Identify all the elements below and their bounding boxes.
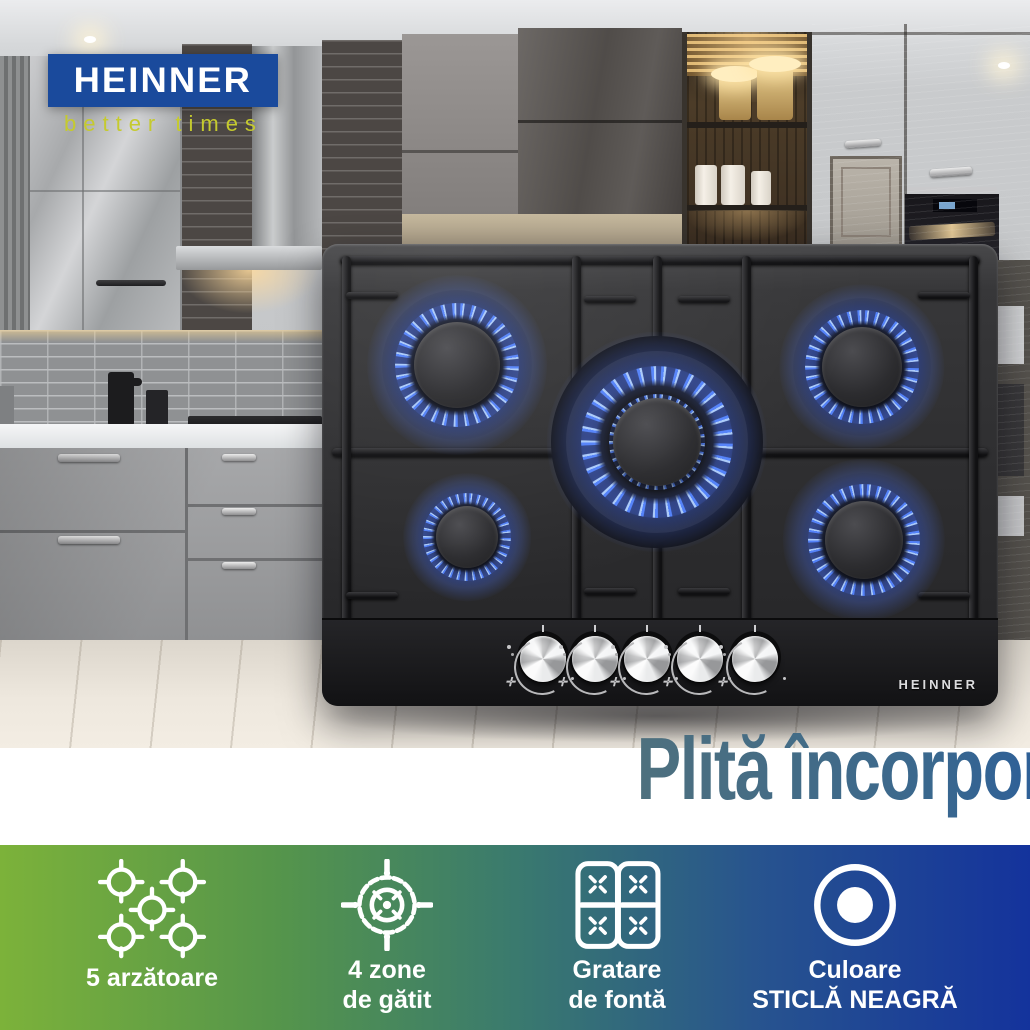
flame-symbol: ✛ bbox=[505, 675, 515, 689]
flame-symbol: ✛ bbox=[609, 675, 619, 689]
drawer-handle bbox=[222, 508, 256, 515]
knob-dial bbox=[520, 636, 566, 682]
headline-text: Plită încorporabilă pe gaz bbox=[637, 718, 1030, 820]
grate-finger bbox=[584, 296, 636, 303]
drawer-handle bbox=[58, 454, 120, 462]
knob-dial bbox=[732, 636, 778, 682]
gas-flame-inner bbox=[609, 394, 705, 490]
burner-cap bbox=[613, 398, 701, 486]
gas-flame bbox=[395, 303, 519, 427]
wall-louvers bbox=[0, 56, 30, 336]
control-knob-3: ✛ bbox=[619, 633, 675, 689]
cabinet-handle bbox=[930, 167, 972, 178]
product-brand-label: HEINNER bbox=[898, 677, 978, 692]
brand-logo: HEINNER bbox=[48, 54, 278, 107]
candle-lamp bbox=[757, 66, 793, 120]
brand-logo-text: HEINNER bbox=[74, 61, 252, 101]
five-burners-icon bbox=[88, 859, 216, 959]
control-knob-1: ✛ bbox=[515, 633, 571, 689]
flame-symbol: ✛ bbox=[717, 675, 727, 689]
ceiling-spotlight bbox=[84, 36, 96, 43]
feature-bar: 5 arzătoare 4 zone de gătit bbox=[0, 845, 1030, 1030]
feature-cooking-zones: 4 zone de gătit bbox=[272, 845, 502, 1030]
grate-bar bbox=[332, 448, 988, 457]
feature-black-glass: Culoare STICLĂ NEAGRĂ bbox=[740, 845, 970, 1030]
burner-cap bbox=[822, 327, 902, 407]
burner-bottom-right bbox=[797, 473, 931, 607]
burner-top-left bbox=[382, 290, 532, 440]
brand-tagline: better times bbox=[64, 111, 279, 137]
ad-canvas: HEINNER better times bbox=[0, 0, 1030, 1030]
gas-flame-outer bbox=[581, 366, 733, 518]
gas-flame bbox=[423, 493, 511, 581]
grate-finger bbox=[678, 588, 730, 595]
control-panel: ✛ ✛ ✛ ✛ bbox=[322, 618, 998, 706]
grate-bar bbox=[342, 256, 351, 645]
jar bbox=[695, 165, 717, 205]
cabinet-handle bbox=[96, 280, 166, 286]
flame-symbol: ✛ bbox=[662, 675, 672, 689]
grate-finger bbox=[346, 592, 398, 599]
gas-hob-product: ✛ ✛ ✛ ✛ bbox=[322, 244, 998, 706]
burner-cap bbox=[414, 322, 500, 408]
gas-flame bbox=[808, 484, 920, 596]
shelf bbox=[687, 122, 807, 128]
soap-dispenser bbox=[108, 372, 134, 426]
feature-label: Gratare de fontă bbox=[502, 955, 732, 1015]
grate-bar bbox=[572, 256, 581, 645]
control-knob-5: ✛ bbox=[727, 633, 783, 689]
grate-finger bbox=[918, 592, 970, 599]
grate-finger bbox=[346, 292, 398, 299]
control-knob-4: ✛ bbox=[672, 633, 728, 689]
burner-cap bbox=[436, 506, 498, 568]
knob-dial bbox=[677, 636, 723, 682]
burner-cap bbox=[825, 501, 903, 579]
feature-label: Culoare STICLĂ NEAGRĂ bbox=[740, 955, 970, 1015]
feature-label: 4 zone de gătit bbox=[272, 955, 502, 1015]
flame-glow bbox=[779, 284, 944, 449]
grate-bar bbox=[742, 256, 751, 645]
knob-dial bbox=[624, 636, 670, 682]
cast-iron-grates-icon bbox=[566, 859, 669, 951]
drawer-handle bbox=[58, 536, 120, 544]
flame-glow bbox=[783, 459, 945, 621]
cabinet-handle bbox=[845, 139, 881, 148]
oven-display bbox=[933, 199, 977, 212]
flame-glow bbox=[547, 332, 767, 552]
hood-light-glow bbox=[178, 270, 320, 314]
grate-bar bbox=[653, 256, 662, 645]
knob-dial bbox=[572, 636, 618, 682]
burner-center-wok bbox=[551, 336, 763, 548]
countertop bbox=[0, 424, 322, 450]
grate-finger bbox=[918, 292, 970, 299]
candle-lamp bbox=[719, 76, 751, 120]
base-cabinets bbox=[0, 448, 322, 648]
cup bbox=[146, 390, 168, 426]
built-in-appliance bbox=[830, 156, 902, 248]
drawer-handle bbox=[222, 562, 256, 569]
jar bbox=[751, 171, 771, 205]
wok-ring bbox=[551, 336, 763, 548]
lighted-shelf-niche bbox=[682, 32, 812, 254]
burner-bottom-left bbox=[413, 483, 521, 591]
drawer-handle bbox=[222, 454, 256, 461]
burner-top-right bbox=[793, 298, 931, 436]
gas-flame bbox=[805, 310, 919, 424]
flame-glow bbox=[403, 473, 531, 601]
black-glass-icon bbox=[809, 859, 901, 951]
grate-finger bbox=[584, 588, 636, 595]
feature-burners: 5 arzătoare bbox=[37, 845, 267, 1030]
flame-symbol: ✛ bbox=[557, 675, 567, 689]
jar bbox=[721, 165, 745, 205]
feature-label: 5 arzătoare bbox=[37, 963, 267, 993]
oven-handle bbox=[907, 187, 997, 192]
grate-bar bbox=[340, 256, 980, 265]
control-knob-2: ✛ bbox=[567, 633, 623, 689]
oven-interior-light bbox=[909, 222, 996, 240]
range-hood-canopy bbox=[176, 246, 322, 270]
under-cabinet-light bbox=[0, 330, 322, 342]
flame-glow bbox=[367, 275, 547, 455]
cooking-zones-icon bbox=[341, 859, 433, 951]
feature-grates: Gratare de fontă bbox=[502, 845, 732, 1030]
grate-bar bbox=[340, 636, 980, 645]
grate-bar bbox=[969, 256, 978, 645]
grate-finger bbox=[678, 296, 730, 303]
faucet bbox=[0, 386, 14, 428]
